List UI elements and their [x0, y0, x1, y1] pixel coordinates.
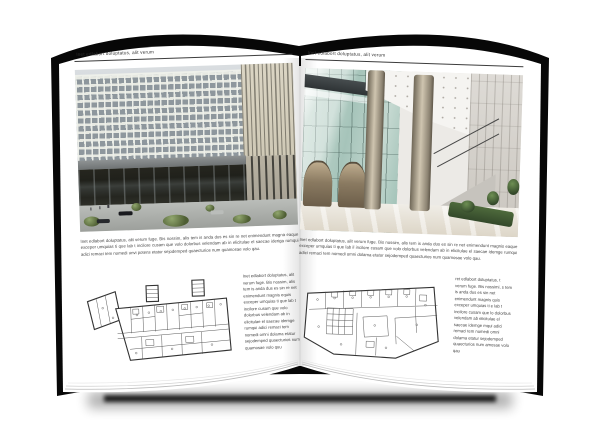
pedestrian — [99, 206, 100, 209]
adjacent-building-lower — [243, 155, 297, 200]
tree — [273, 210, 287, 219]
revolving-door — [338, 161, 368, 208]
left-page: Inet edlabort doluptatus, alit verum Ine… — [74, 39, 303, 367]
brochure-mockup: { "document": { "type": "open-brochure-m… — [0, 0, 600, 446]
right-body-paragraph: Inet edlabort doluptatus, alit verum fug… — [299, 237, 518, 264]
revolving-door — [303, 160, 333, 207]
adjacent-building-upper — [240, 63, 295, 157]
left-bottom-section: Inet edlabort doluptatus, alit verum fug… — [82, 272, 303, 367]
glass-base-storeys — [78, 164, 247, 206]
right-column-text: ret edlabort doluptatus, t verum fuge. B… — [452, 276, 512, 370]
column — [410, 75, 434, 212]
floor-plan-drawing-left — [82, 274, 237, 367]
lobby-interior-photo — [300, 68, 523, 237]
tree — [132, 202, 142, 210]
pedestrian — [90, 207, 91, 210]
tree — [232, 214, 250, 224]
floor-plan-drawing-right — [295, 271, 446, 368]
car — [97, 219, 110, 223]
right-bottom-section: ret edlabort doluptatus, t verum fuge. B… — [295, 271, 516, 370]
left-body-paragraph: Inet edlabort doluptatus, alit verum fug… — [80, 232, 299, 259]
pedestrian — [108, 205, 109, 208]
left-plan-wrap — [82, 274, 237, 367]
book-shadow-core — [104, 395, 496, 402]
left-column-text: Inet edlabort doluptatus, alit verum fug… — [243, 272, 303, 362]
office-building-exterior-photo — [75, 63, 298, 232]
car — [210, 210, 223, 214]
building-facade — [75, 69, 246, 162]
right-page: Inet edlabort doluptatus, alit verum Ine… — [295, 44, 523, 370]
right-plan-wrap — [295, 271, 446, 368]
